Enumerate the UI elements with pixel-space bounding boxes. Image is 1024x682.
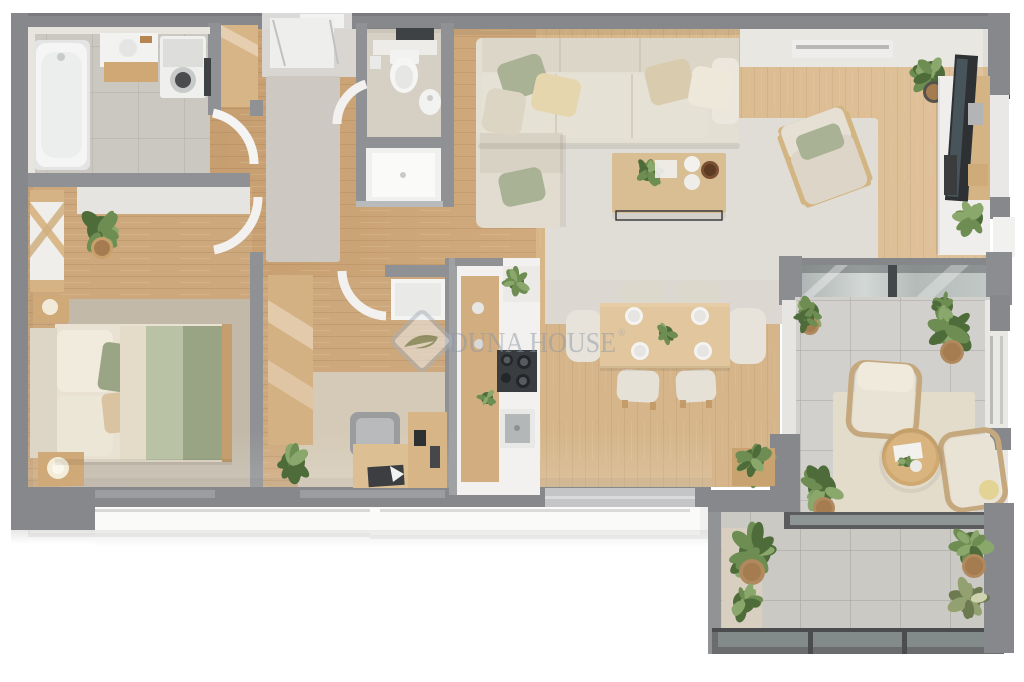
svg-text:DUNA HOUSE: DUNA HOUSE [449,327,616,359]
svg-text:®: ® [618,328,626,339]
